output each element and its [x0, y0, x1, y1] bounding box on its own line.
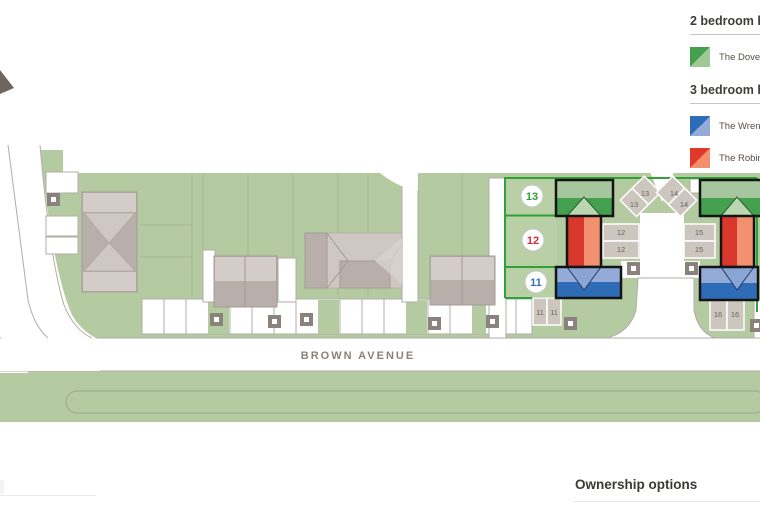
plot-marker-12: 12	[522, 229, 544, 251]
parking-label: 14	[680, 200, 688, 209]
house-type-name: The Robin	[719, 153, 760, 164]
driveway	[46, 237, 78, 254]
green-verge-strip	[0, 373, 760, 422]
green-gap	[318, 300, 339, 334]
house-the-wren	[700, 267, 758, 300]
parking-label: 12	[617, 228, 625, 237]
existing-building-1	[82, 192, 137, 292]
plot-number: 12	[527, 235, 539, 247]
legend-item-the-wren: The Wren	[690, 116, 760, 136]
bottom-left-divider	[0, 495, 96, 496]
plot-marker-13: 13	[521, 185, 543, 207]
development-site-plan: 13 13 14 14 12 12 15 15 11 11 16 16	[0, 0, 760, 512]
existing-building-2	[214, 256, 277, 307]
parking-11: 11 11	[533, 298, 561, 325]
parking-label: 11	[536, 308, 544, 317]
parking-16: 16 16	[710, 299, 744, 330]
parking-label: 12	[617, 245, 625, 254]
edge-triangle-shape	[0, 70, 14, 94]
green-gap	[406, 300, 427, 334]
legend: 2 bedroom homes The Dove 3 bedroom homes…	[690, 8, 760, 168]
parking-15: 15 15	[684, 224, 715, 258]
legend-section-title: 3 bedroom homes	[690, 77, 760, 97]
legend-section-2-bedroom: 2 bedroom homes The Dove	[690, 8, 760, 67]
house-the-wren	[556, 267, 621, 298]
driveway	[46, 172, 78, 193]
house-type-name: The Wren	[719, 121, 760, 132]
plot-number: 11	[530, 277, 542, 289]
parking-label: 15	[695, 245, 703, 254]
parking-label: 14	[670, 189, 678, 198]
legend-divider	[690, 103, 760, 104]
parking-label: 13	[641, 189, 649, 198]
legend-item-the-dove: The Dove	[690, 47, 760, 67]
parking-label: 16	[714, 310, 722, 319]
parking-label: 15	[695, 228, 703, 237]
house-the-robin	[567, 216, 601, 267]
parking-label: 16	[731, 310, 739, 319]
plot-marker-11: 11	[525, 271, 547, 293]
street-name-label: BROWN AVENUE	[301, 350, 415, 362]
house-the-dove	[700, 180, 760, 216]
parking-12: 12 12	[603, 224, 639, 258]
parking-court	[640, 213, 684, 263]
ownership-divider	[573, 501, 760, 502]
parking-label: 11	[550, 308, 558, 317]
driveway	[278, 258, 296, 302]
legend-section-title: 2 bedroom homes	[690, 8, 760, 28]
house-type-swatch-dove	[690, 47, 710, 67]
existing-building-4	[430, 256, 495, 305]
legend-section-3-bedroom: 3 bedroom homes The Wren The Robin	[690, 77, 760, 168]
house-the-dove	[556, 180, 613, 216]
bottom-left-cropped-element	[0, 480, 4, 494]
ownership-options-heading: Ownership options	[575, 477, 697, 492]
driveway	[46, 216, 78, 236]
parking-label: 13	[630, 200, 638, 209]
house-the-robin	[721, 216, 754, 267]
house-type-name: The Dove	[719, 52, 760, 63]
footpath	[402, 175, 418, 302]
green-patch-top-left	[40, 150, 63, 175]
legend-item-the-robin: The Robin	[690, 148, 760, 168]
site-plan-page: 13 13 14 14 12 12 15 15 11 11 16 16	[0, 0, 760, 512]
house-type-swatch-robin	[690, 148, 710, 168]
plot-number: 13	[526, 191, 538, 203]
legend-divider	[690, 34, 760, 35]
existing-building-3	[305, 233, 402, 288]
driveway	[203, 250, 215, 302]
house-type-swatch-wren	[690, 116, 710, 136]
